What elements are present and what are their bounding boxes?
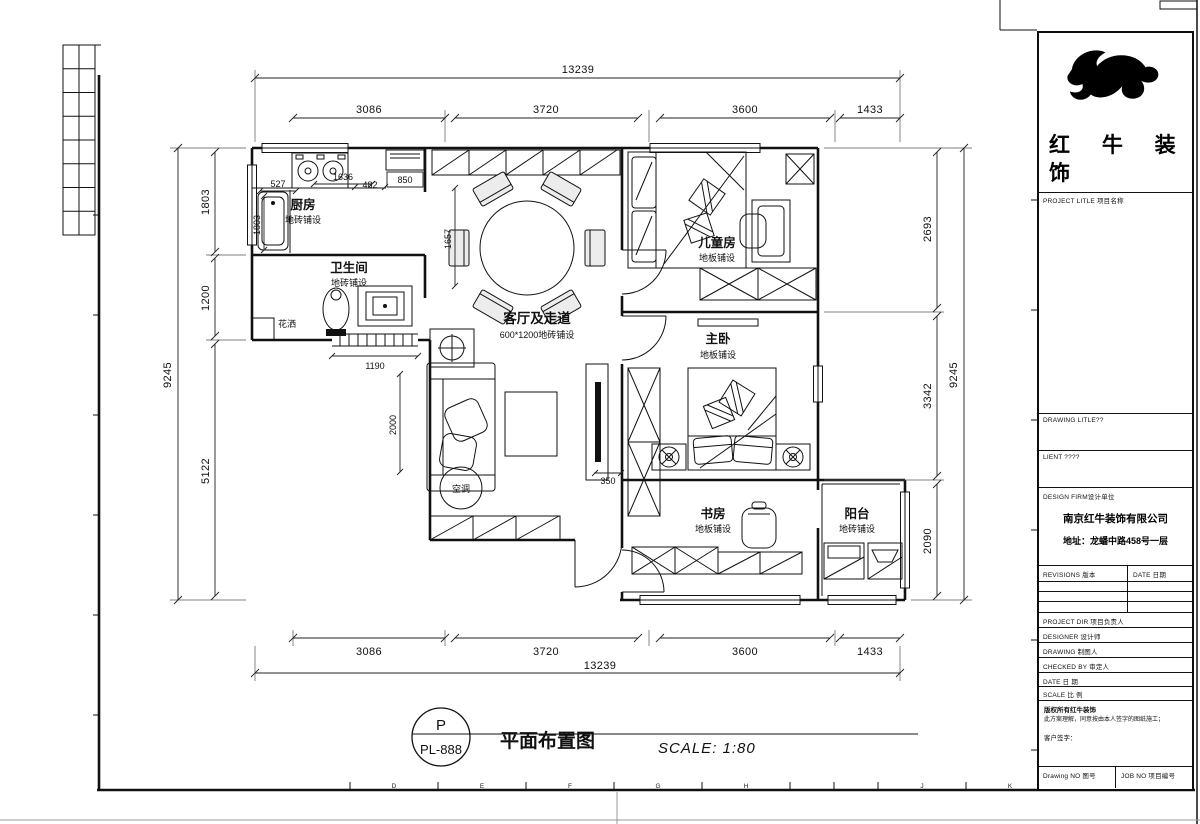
toilet: [323, 288, 349, 336]
corner-tab: [1160, 1, 1197, 9]
grid-letter: G: [655, 783, 660, 790]
revision-strip: [63, 45, 95, 235]
bull-logo-icon: [1067, 50, 1158, 99]
shelf: [698, 319, 758, 326]
dim-right-seg: 2090: [922, 528, 934, 554]
room-name-master: 主卧: [705, 331, 731, 346]
desk-chair: [740, 214, 766, 248]
drawing-label: DRAWING 制图人: [1043, 646, 1098, 656]
tv-panel: [595, 382, 601, 462]
dimensions-left: 1803 1200 5122 9245: [162, 144, 219, 604]
door-children-room: [622, 250, 666, 294]
lamp: [783, 447, 803, 467]
revisions-label: REVISIONS 版本: [1043, 569, 1096, 579]
designer-label: DESIGNER 设计师: [1043, 631, 1101, 641]
bottom-row-divider: [1115, 766, 1116, 788]
dim-top-seg: 3086: [356, 104, 382, 116]
dim-left-total: 9245: [162, 362, 174, 388]
ac-label: 空调: [452, 483, 470, 494]
grid-letter: E: [480, 783, 485, 790]
dimensions-top: 13239 3086 3720 3600 1433: [251, 64, 904, 122]
drawing-stamp: P PL-888 平面布置图 SCALE: 1:80: [412, 708, 918, 766]
dim-interior: 850: [397, 175, 412, 185]
master-bedroom-furniture: [628, 319, 810, 516]
dim-top-total: 13239: [562, 64, 595, 76]
room-name-children: 儿童房: [697, 235, 736, 250]
revisions-divider: [1127, 565, 1128, 612]
project-title-label: PROJECT LITLE 项目名称: [1043, 195, 1124, 205]
dining-set: [449, 171, 605, 324]
room-finish-master: 地板铺设: [700, 349, 736, 360]
stove: [292, 153, 348, 188]
date-label: DATE 日 期: [1043, 676, 1078, 686]
ac-symbol: 空调: [440, 467, 482, 509]
company-name: 南京红牛装饰有限公司: [1039, 511, 1192, 526]
dim-interior: 2000: [388, 415, 398, 435]
client-label: LIENT ????: [1043, 454, 1080, 461]
dim-left-seg: 1803: [200, 189, 212, 215]
sofa-set: [427, 363, 557, 491]
title-block: 红 牛 装 饰 PROJECT LITLE 项目名称 DRAWING LITLE…: [1037, 31, 1194, 791]
window-study-bottom: [640, 596, 800, 605]
bed-pillow-decor: [689, 179, 725, 215]
dim-right-total: 9245: [948, 362, 960, 388]
sofa-cushion: [438, 432, 477, 471]
dim-top-seg: 1433: [857, 104, 883, 116]
kitchen-fixtures: [252, 150, 424, 253]
floor-drain-symbol: [430, 329, 474, 367]
balcony-fixtures: [822, 484, 902, 596]
tv-unit: [430, 364, 608, 540]
dim-interior: 350: [600, 476, 615, 486]
drawing-title: 平面布置图: [500, 729, 595, 752]
brand-name-line1: 红 牛 装: [1049, 129, 1189, 159]
room-finish-bathroom: 地砖铺设: [331, 277, 367, 288]
dining-chair: [540, 171, 581, 206]
dining-chair: [472, 171, 513, 206]
room-finish-balcony: 地砖铺设: [839, 523, 875, 534]
drawing-title-label: DRAWING LITLE??: [1043, 417, 1104, 424]
project-dir-label: PROJECT DIR 项目负责人: [1043, 616, 1124, 626]
kitchen-sink: [258, 192, 288, 250]
room-finish-children: 地板铺设: [699, 252, 735, 263]
dim-right-seg: 2693: [922, 216, 934, 242]
dim-left-seg: 1200: [200, 285, 212, 311]
coffee-table: [505, 392, 557, 456]
dim-interior: 1636: [333, 172, 353, 182]
dim-top-seg: 3720: [533, 104, 559, 116]
stamp-letter: P: [436, 717, 446, 734]
window-children-top: [650, 144, 760, 153]
wardrobe-hatch: [628, 368, 660, 516]
pillow: [693, 435, 733, 464]
dim-top-seg: 3600: [732, 104, 758, 116]
washing-machine: [824, 543, 864, 579]
dim-bottom-seg: 1433: [857, 646, 883, 658]
dim-left-seg: 5122: [200, 458, 212, 484]
company-address: 地址：龙蟠中路458号一层: [1039, 534, 1192, 547]
balcony-basin: [868, 543, 902, 579]
door-master-bedroom: [622, 316, 666, 360]
dim-bottom-seg: 3720: [533, 646, 559, 658]
room-finish-living: 600*1200地砖铺设: [500, 329, 575, 340]
copyright-line1: 版权所有红牛装饰: [1044, 704, 1096, 714]
brand-name-line2: 饰: [1049, 157, 1083, 187]
children-bed: [628, 152, 746, 268]
room-name-living: 客厅及走道: [502, 310, 571, 326]
stamp-code: PL-888: [420, 742, 462, 757]
dim-interior: 1190: [365, 361, 384, 371]
room-name-study: 书房: [700, 506, 725, 521]
doors: [575, 250, 666, 592]
grid-letter: K: [1008, 783, 1013, 790]
shower-tray: [358, 286, 412, 326]
lamp: [659, 447, 679, 467]
design-firm-label: DESIGN FIRM设计单位: [1043, 491, 1115, 501]
drawing-sheet: D E F G H J K: [0, 0, 1200, 824]
room-name-bathroom: 卫生间: [330, 260, 368, 275]
dim-bottom-total: 13239: [584, 660, 617, 672]
window-balcony-bottom: [828, 596, 896, 605]
brand-logo: [1053, 41, 1179, 127]
grid-letter: F: [568, 783, 572, 790]
checked-by-label: CHECKED BY 审定人: [1043, 661, 1109, 671]
dimension-extension-lines: [170, 70, 972, 681]
revisions-date-label: DATE 日期: [1133, 569, 1166, 579]
room-finish-study: 地板铺设: [695, 523, 731, 534]
dimensions-right: 2693 3342 2090 9245: [922, 144, 968, 604]
window-kitchen-top: [262, 144, 348, 153]
door-entrance: [575, 540, 622, 587]
dim-interior: 527: [270, 179, 285, 189]
dim-interior: 1657: [443, 229, 453, 249]
dim-interior: 1803: [252, 215, 262, 235]
dining-table: [480, 201, 574, 295]
windows: [248, 144, 910, 605]
scale-note: SCALE: 1:80: [658, 740, 756, 757]
shower-label: 花洒: [278, 318, 296, 329]
hall-closet-hatch: [432, 150, 620, 175]
desk-hatch: [718, 552, 802, 574]
dim-right-seg: 3342: [922, 383, 934, 409]
copyright-line2: 此方案理解，同意按由本人签字的图纸施工；: [1044, 714, 1164, 723]
dim-bottom-seg: 3600: [732, 646, 758, 658]
room-finish-kitchen: 地砖铺设: [285, 214, 321, 225]
walls: [252, 148, 905, 600]
window-master-right: [814, 366, 823, 402]
dining-chair: [585, 230, 605, 266]
scale-label: SCALE 比 例: [1043, 689, 1083, 699]
drawing-no-label: Drawing NO 图号: [1043, 770, 1096, 780]
grid-letter: J: [920, 783, 923, 790]
room-name-balcony: 阳台: [844, 506, 869, 521]
customer-sign-label: 客户签字：: [1044, 732, 1077, 742]
grid-letter: H: [744, 783, 749, 790]
room-name-kitchen: 厨房: [290, 197, 315, 212]
door-study: [622, 550, 664, 592]
dim-bottom-seg: 3086: [356, 646, 382, 658]
grid-letter: D: [392, 783, 397, 790]
dim-interior: 482: [362, 180, 377, 190]
bathroom-fixtures: [252, 286, 412, 340]
floor-plan-canvas: D E F G H J K: [0, 0, 1200, 824]
shower-corner: [252, 318, 274, 340]
fridge: [386, 150, 424, 170]
job-no-label: JOB NO 项目编号: [1121, 770, 1175, 780]
dimensions-bottom: 3086 3720 3600 1433 13239: [251, 634, 904, 677]
cabinet-hatch: [632, 547, 718, 574]
